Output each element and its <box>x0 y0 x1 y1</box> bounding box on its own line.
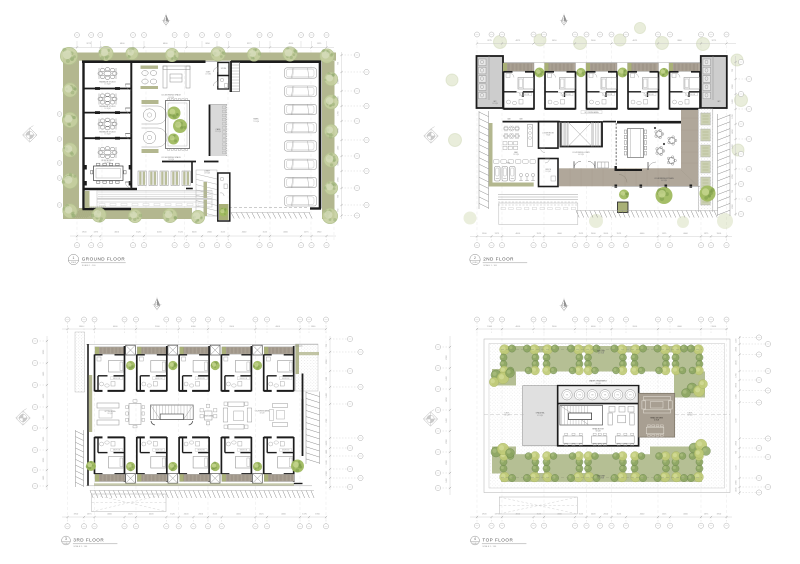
svg-text:16 SQM: 16 SQM <box>104 134 111 136</box>
svg-text:2ND FLOOR: 2ND FLOOR <box>483 257 514 262</box>
svg-text:BEDROOM: BEDROOM <box>155 450 163 452</box>
svg-text:12 SQM: 12 SQM <box>205 74 211 76</box>
svg-text:11 SQM: 11 SQM <box>546 171 552 173</box>
svg-text:120 SQM: 120 SQM <box>598 478 605 480</box>
svg-text:1: 1 <box>73 256 75 260</box>
svg-text:BEDROOM: BEDROOM <box>563 94 571 96</box>
svg-text:20 SQM: 20 SQM <box>595 383 601 385</box>
svg-text:BEDROOM: BEDROOM <box>282 378 290 380</box>
svg-text:BEDROOM: BEDROOM <box>282 450 290 452</box>
svg-text:SPA AREA: SPA AREA <box>536 412 545 415</box>
svg-text:BEDROOM: BEDROOM <box>198 378 206 380</box>
svg-text:SCALE 1 : 100: SCALE 1 : 100 <box>482 545 497 548</box>
svg-text:SCALE 1 : 100: SCALE 1 : 100 <box>73 545 88 548</box>
svg-text:BEDROOM: BEDROOM <box>240 450 248 452</box>
svg-text:92 SQM: 92 SQM <box>537 415 543 417</box>
svg-text:13 SQM: 13 SQM <box>204 173 211 175</box>
svg-text:STORE: STORE <box>221 68 226 70</box>
svg-text:28 SQM: 28 SQM <box>513 154 519 156</box>
svg-text:3RD FLOOR: 3RD FLOOR <box>73 538 104 543</box>
svg-text:16 SQM: 16 SQM <box>104 84 111 86</box>
svg-text:WALKWAY: WALKWAY <box>597 350 606 353</box>
svg-text:BEDROOM: BEDROOM <box>605 94 613 96</box>
svg-text:BEDROOM: BEDROOM <box>688 94 696 96</box>
svg-text:BEDROOM: BEDROOM <box>198 450 206 452</box>
svg-text:71 SQM: 71 SQM <box>253 121 260 123</box>
svg-text:32 SQM: 32 SQM <box>260 413 265 415</box>
svg-text:TOP FLOOR: TOP FLOOR <box>482 538 513 543</box>
svg-text:3: 3 <box>65 537 67 541</box>
svg-text:64 SQM: 64 SQM <box>504 415 510 417</box>
svg-text:14 SQM: 14 SQM <box>492 103 498 105</box>
svg-text:SCALE 1 : 100: SCALE 1 : 100 <box>483 264 498 267</box>
svg-text:BEDROOM: BEDROOM <box>240 378 248 380</box>
svg-text:23 SQM: 23 SQM <box>215 131 222 133</box>
svg-text:64 SQM: 64 SQM <box>687 415 693 417</box>
svg-text:120 SQM: 120 SQM <box>598 353 605 355</box>
svg-text:OFFICE: OFFICE <box>545 169 551 171</box>
svg-text:30 SQM: 30 SQM <box>595 430 601 432</box>
svg-text:BEDROOM: BEDROOM <box>155 378 163 380</box>
svg-text:4: 4 <box>474 537 476 541</box>
svg-text:WALKWAY: WALKWAY <box>597 475 606 478</box>
svg-text:2: 2 <box>474 256 476 260</box>
svg-text:16 SQM: 16 SQM <box>104 108 111 110</box>
svg-text:GROUND FLOOR: GROUND FLOOR <box>82 257 126 262</box>
svg-text:BEDROOM: BEDROOM <box>522 94 530 96</box>
svg-text:WATER TREATMENT: WATER TREATMENT <box>589 380 608 383</box>
svg-text:40 SQM: 40 SQM <box>654 419 660 421</box>
svg-text:GYM: GYM <box>506 163 510 165</box>
svg-text:LOCKER ROOM: LOCKER ROOM <box>542 133 554 135</box>
svg-text:SCALE 1 : 100: SCALE 1 : 100 <box>82 264 97 267</box>
svg-text:CO-WORKING KITCHEN: CO-WORKING KITCHEN <box>654 178 674 180</box>
svg-text:BEDROOM: BEDROOM <box>113 378 121 380</box>
svg-text:BEDROOM: BEDROOM <box>113 450 121 452</box>
svg-text:18 SQM: 18 SQM <box>107 413 113 415</box>
svg-text:40 SQM: 40 SQM <box>578 154 584 156</box>
svg-text:CO-WORKING LOBBY: CO-WORKING LOBBY <box>572 152 590 154</box>
svg-text:60 SQM: 60 SQM <box>661 180 667 182</box>
svg-text:BEDROOM: BEDROOM <box>646 94 654 96</box>
